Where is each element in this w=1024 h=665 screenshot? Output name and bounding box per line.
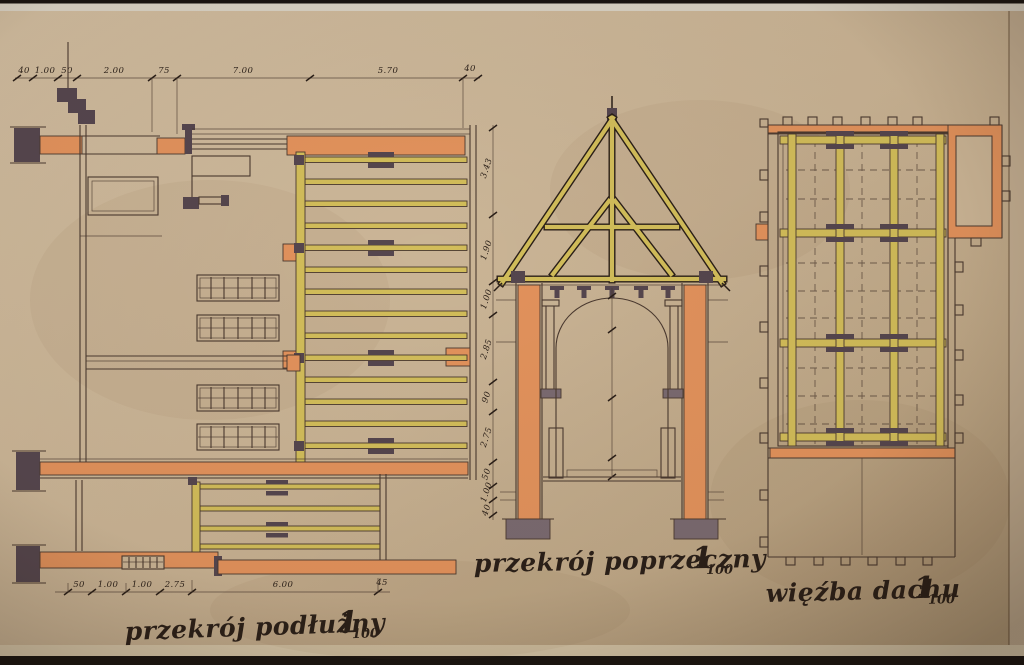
dim-label: 40: [17, 66, 30, 76]
scale-denominator: 100: [352, 626, 380, 642]
dim-label: 1.00: [35, 66, 56, 76]
photo-edge-bottom: [0, 656, 1024, 665]
paper-right-edge: [1009, 0, 1024, 665]
basement-window: [122, 556, 164, 569]
dim-label: 50: [73, 580, 85, 590]
plan-annex-interior: [956, 136, 992, 226]
dim-label: 1.00: [98, 580, 119, 590]
joist-post: [296, 152, 305, 464]
scale-denominator: 100: [706, 562, 733, 577]
dim-label: 5.70: [378, 66, 399, 76]
dim-label: 50: [61, 66, 73, 76]
scale-denominator: 100: [928, 592, 956, 608]
dim-label: 40: [463, 64, 476, 74]
joist-post: [192, 482, 200, 554]
dim-label: 45: [375, 578, 388, 588]
dim-label: 2.00: [103, 66, 125, 76]
drawing-photograph: 40 1.00 50 2.00 75 7.00 5.70 40: [0, 0, 1024, 665]
plan-south-wall: [770, 448, 955, 458]
dim-label: 6.00: [273, 580, 294, 590]
dim-label: 7.00: [233, 66, 254, 76]
dim-label: 75: [158, 66, 170, 76]
photo-top-strip: [0, 3, 1024, 11]
photo-edge-top: [0, 0, 1024, 4]
architectural-drawing: 40 1.00 50 2.00 75 7.00 5.70 40: [0, 0, 1024, 665]
main-floor: [40, 459, 468, 478]
dim-label: 2.75: [164, 580, 186, 590]
dim-label: 1.00: [132, 580, 153, 590]
